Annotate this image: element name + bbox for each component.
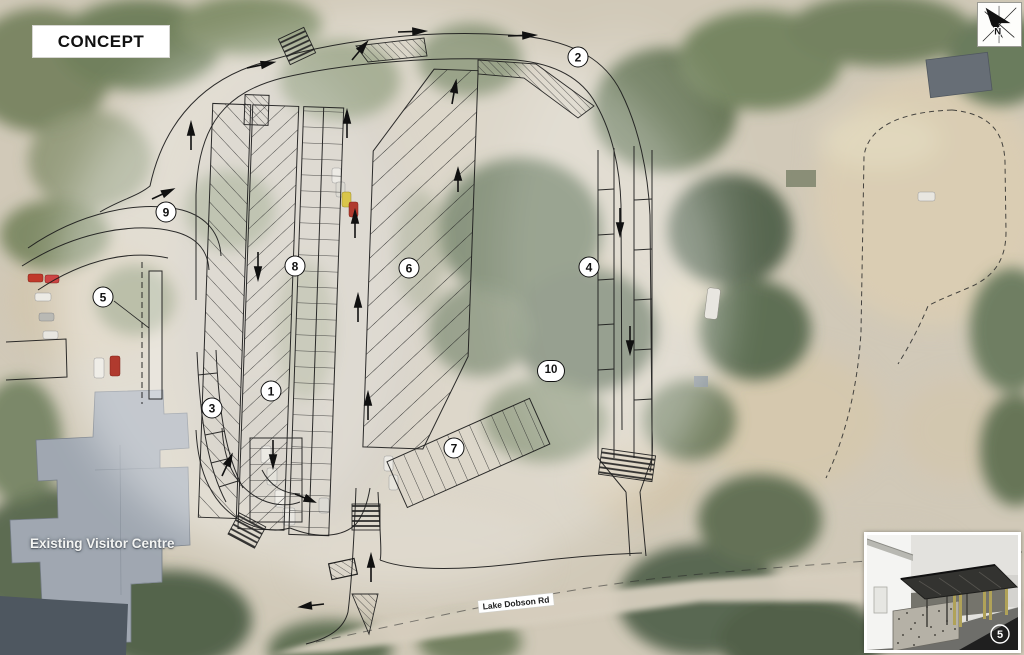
plan-marker-5: 5 [93,287,114,308]
inset-render-image: 5 [867,535,1018,650]
plan-marker-4: 4 [579,257,600,278]
north-arrow-icon: N [978,3,1021,46]
plan-marker-1: 1 [261,381,282,402]
plan-marker-6: 6 [399,258,420,279]
north-arrow: N [977,2,1022,47]
plan-marker-10: 10 [537,360,565,382]
inset-render: 5 [864,532,1021,653]
concept-title-text: CONCEPT [58,32,145,52]
plan-marker-8: 8 [285,256,306,277]
plan-marker-7: 7 [444,438,465,459]
concept-title: CONCEPT [33,26,169,57]
inset-badge: 5 [997,629,1003,641]
plan-marker-3: 3 [202,398,223,419]
plan-marker-2: 2 [568,47,589,68]
concept-plan-canvas: CONCEPT N 12345678910 Existing Visitor C… [0,0,1024,655]
plan-marker-9: 9 [156,202,177,223]
north-letter: N [994,27,1001,38]
visitor-centre-label: Existing Visitor Centre [30,536,175,551]
